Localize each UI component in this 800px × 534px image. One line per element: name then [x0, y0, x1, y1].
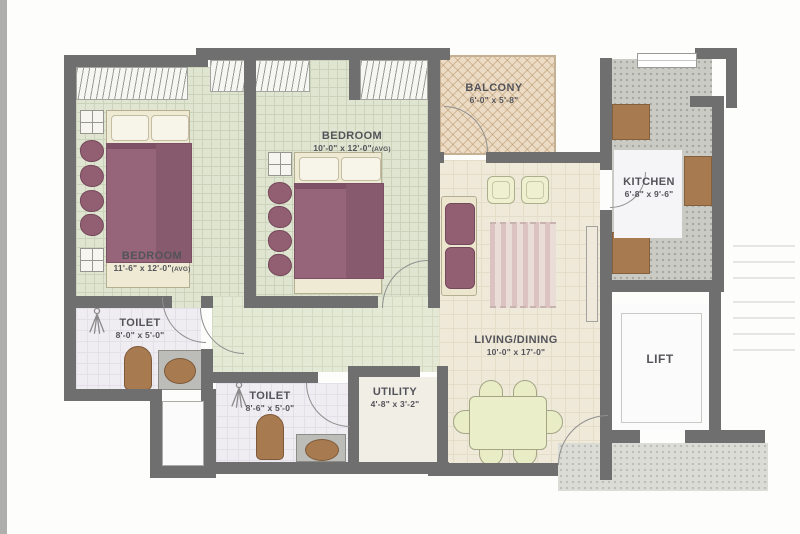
bedroom-2-dims: 10'-0" x 12'-0": [313, 143, 372, 153]
wall: [348, 366, 420, 377]
wall: [712, 96, 724, 292]
wall: [64, 55, 76, 401]
kitchen-counter: [612, 232, 650, 274]
washbasin: [305, 439, 339, 461]
wall: [256, 296, 378, 308]
kitchen-counter: [684, 156, 712, 206]
balcony-label: BALCONY 6'-0" x 5'-8": [465, 82, 522, 106]
bedroom-1-label: BEDROOM 11'-6" x 12'-0"(AVG): [113, 250, 190, 275]
rug: [490, 222, 556, 308]
bedroom-1-dims: 11'-6" x 12'-0": [113, 263, 171, 273]
utility-name: UTILITY: [371, 386, 420, 399]
wall: [486, 152, 602, 163]
bedroom-2-window-hatch: [210, 60, 310, 92]
bedroom-1-door-arc: [200, 308, 244, 354]
bedroom-1-name: BEDROOM: [113, 250, 190, 263]
ottoman: [521, 176, 549, 204]
kitchen-window: [637, 53, 697, 68]
stairs-ghost: [733, 245, 795, 365]
bedside-table: [80, 248, 104, 272]
balcony-dims: 6'-0" x 5'-8": [465, 95, 522, 106]
toilet-2-name: TOILET: [246, 390, 295, 403]
wall: [244, 60, 256, 308]
wall: [428, 60, 440, 308]
bedside-table: [80, 110, 104, 134]
wall: [600, 58, 612, 170]
wall: [64, 389, 162, 401]
wall: [150, 389, 162, 478]
utility-label: UTILITY 4'-8" x 3'-2": [371, 386, 420, 410]
lift-name: LIFT: [646, 352, 673, 366]
bedside-table: [268, 152, 292, 176]
utility-dims: 4'-8" x 3'-2": [371, 399, 420, 410]
lift-label: LIFT: [646, 352, 673, 366]
bedroom-2-wardrobe-hatch: [360, 60, 428, 100]
wall: [437, 366, 448, 474]
tv-unit: [586, 226, 598, 322]
wall: [204, 372, 318, 383]
living-dining-dims: 10'-0" x 17'-0": [474, 347, 557, 358]
shower-icon: [84, 306, 110, 338]
dining-table: [469, 396, 547, 450]
wall: [64, 55, 206, 67]
photo-edge-strip: [0, 0, 7, 534]
wall: [726, 48, 737, 108]
wall: [690, 96, 724, 107]
wall: [428, 463, 558, 476]
washbasin: [164, 358, 196, 384]
wall: [64, 296, 172, 308]
bedroom-2-avg: (AVG): [372, 146, 391, 153]
wall: [729, 430, 765, 443]
wall: [685, 430, 729, 443]
toilet-wc: [124, 346, 152, 390]
living-dining-label: LIVING/DINING 10'-0" x 17'-0": [474, 334, 557, 358]
shaft: [162, 401, 204, 466]
toilet-1-name: TOILET: [116, 317, 165, 330]
toilet-1-dims: 8'-0" x 5'-0": [116, 330, 165, 341]
wall: [349, 60, 360, 100]
wall: [204, 48, 450, 60]
lift-car-outline: [621, 313, 702, 423]
bed: [294, 152, 382, 294]
bedroom-2-name: BEDROOM: [313, 130, 391, 143]
bedroom-2-label: BEDROOM 10'-0" x 12'-0"(AVG): [313, 130, 391, 155]
toilet-wc: [256, 414, 284, 460]
bedroom-1-wardrobe-hatch: [76, 67, 188, 100]
sofa: [441, 196, 477, 296]
ottoman: [487, 176, 515, 204]
wall: [428, 152, 444, 163]
wall: [709, 292, 721, 442]
living-dining-name: LIVING/DINING: [474, 334, 557, 347]
wall: [204, 462, 449, 474]
toilet-1-label: TOILET 8'-0" x 5'-0": [116, 317, 165, 341]
kitchen-counter: [612, 104, 650, 140]
kitchen-dims: 6'-8" x 9'-6": [623, 189, 675, 200]
kitchen-label: KITCHEN 6'-8" x 9'-6": [623, 176, 675, 200]
toilet-2-label: TOILET 8'-6" x 5'-0": [246, 390, 295, 414]
kitchen-name: KITCHEN: [623, 176, 675, 189]
balcony-name: BALCONY: [465, 82, 522, 95]
floor-plan: BEDROOM 11'-6" x 12'-0"(AVG) BEDROOM 10'…: [0, 0, 800, 534]
toilet-2-dims: 8'-6" x 5'-0": [246, 403, 295, 414]
bedroom-1-avg: (AVG): [172, 266, 191, 273]
wall: [600, 280, 724, 292]
